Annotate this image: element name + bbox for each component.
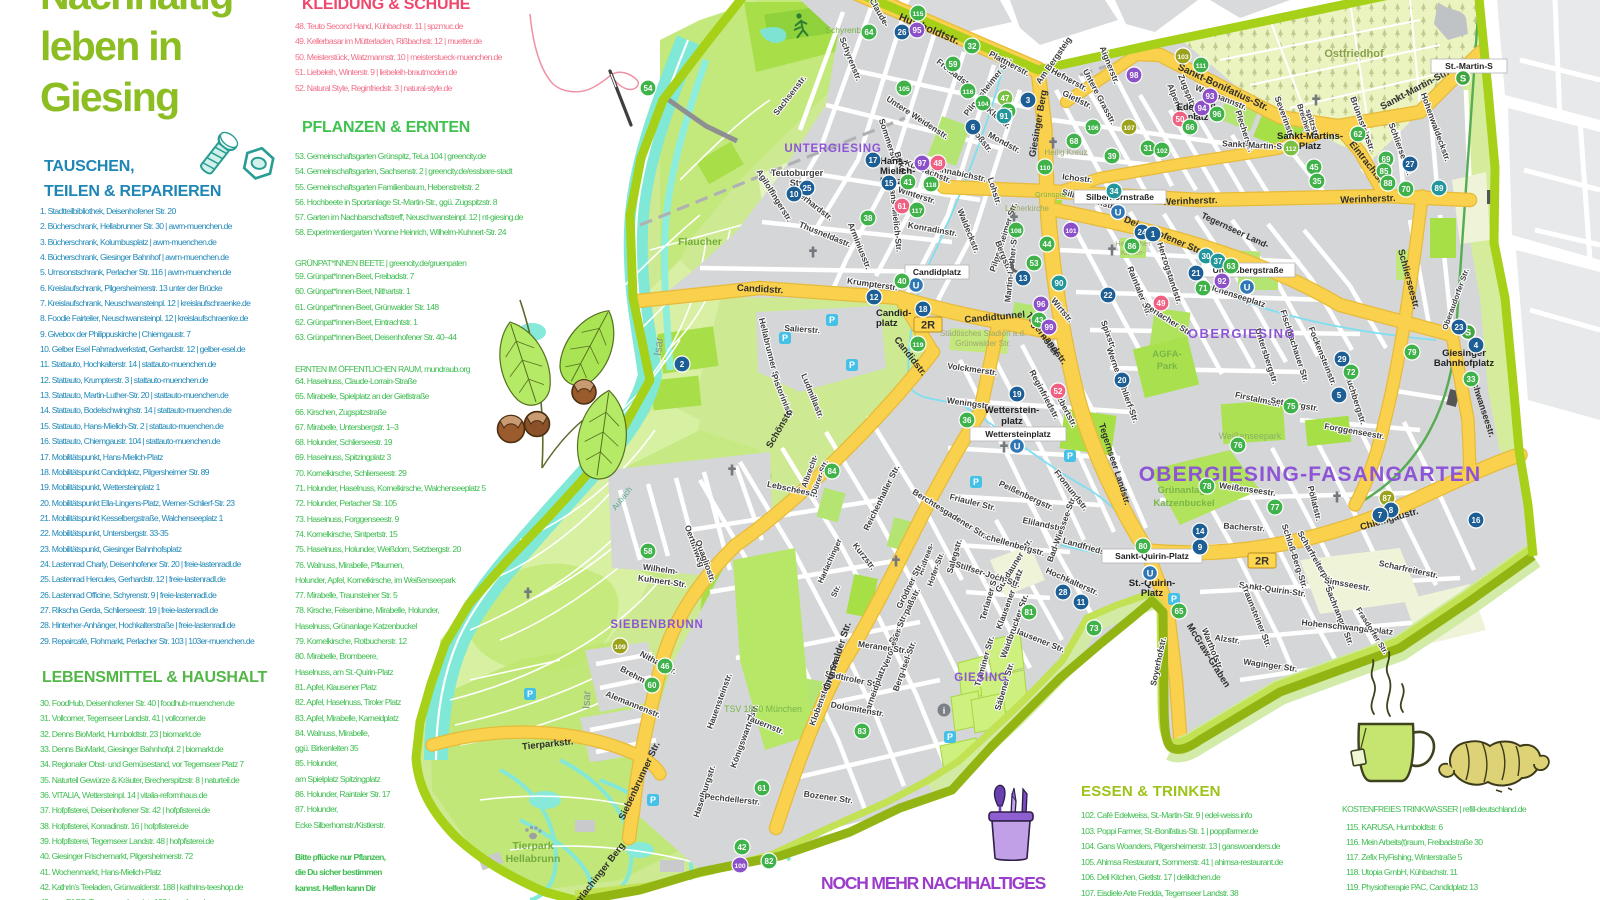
svg-text:42: 42 — [738, 843, 747, 852]
svg-text:1: 1 — [1151, 230, 1156, 239]
svg-text:Werinherstr.: Werinherstr. — [1340, 193, 1396, 206]
svg-text:117: 117 — [912, 208, 923, 215]
svg-text:19: 19 — [1013, 390, 1022, 399]
svg-text:Grünwalder Str.: Grünwalder Str. — [955, 339, 1011, 348]
svg-text:93: 93 — [1206, 92, 1215, 101]
svg-text:16: 16 — [1472, 516, 1481, 525]
svg-text:2R: 2R — [921, 320, 935, 332]
svg-text:106: 106 — [1087, 125, 1099, 132]
svg-text:17: 17 — [869, 156, 878, 165]
svg-text:5: 5 — [1337, 391, 1342, 400]
svg-text:52: 52 — [1054, 387, 1063, 396]
svg-text:38: 38 — [864, 214, 873, 223]
svg-text:119: 119 — [913, 342, 924, 349]
svg-text:P: P — [849, 360, 855, 370]
svg-text:S: S — [1460, 73, 1466, 84]
svg-text:10: 10 — [790, 190, 799, 199]
svg-text:82: 82 — [765, 857, 774, 866]
svg-text:75: 75 — [1287, 402, 1296, 411]
svg-text:9: 9 — [1198, 543, 1203, 552]
svg-text:3: 3 — [1026, 96, 1031, 105]
svg-text:91: 91 — [1000, 112, 1009, 121]
svg-text:Grünspitz: Grünspitz — [1035, 190, 1067, 199]
svg-text:89: 89 — [1435, 184, 1444, 193]
svg-text:25: 25 — [803, 184, 812, 193]
svg-text:98: 98 — [1130, 71, 1139, 80]
svg-text:Platz: Platz — [1141, 588, 1163, 599]
svg-text:P: P — [1067, 451, 1073, 461]
svg-text:21: 21 — [1192, 269, 1201, 278]
svg-text:69: 69 — [1382, 155, 1391, 164]
svg-text:14: 14 — [1196, 527, 1205, 536]
svg-text:96: 96 — [1037, 300, 1046, 309]
svg-text:P: P — [947, 732, 953, 742]
svg-text:2R: 2R — [1255, 556, 1269, 568]
svg-text:111: 111 — [1196, 63, 1207, 70]
svg-text:92: 92 — [1218, 277, 1227, 286]
svg-text:77: 77 — [1271, 503, 1280, 512]
svg-text:31: 31 — [1144, 144, 1153, 153]
svg-text:TSV 1860 München: TSV 1860 München — [724, 704, 802, 714]
svg-text:46: 46 — [661, 662, 670, 671]
svg-text:37: 37 — [1214, 257, 1223, 266]
svg-text:Wettersteinplatz: Wettersteinplatz — [985, 429, 1051, 439]
svg-text:U: U — [1014, 441, 1021, 452]
svg-text:11: 11 — [1077, 598, 1086, 607]
svg-text:112: 112 — [1286, 146, 1297, 153]
svg-text:Isar: Isar — [652, 336, 666, 356]
svg-text:Weißenseepark: Weißenseepark — [1219, 431, 1282, 441]
svg-text:2: 2 — [680, 360, 685, 369]
svg-text:62: 62 — [1354, 130, 1363, 139]
svg-text:54: 54 — [644, 84, 653, 93]
svg-text:102: 102 — [1156, 148, 1168, 155]
svg-text:99: 99 — [1045, 323, 1054, 332]
svg-text:P: P — [782, 333, 788, 343]
svg-text:GIESING: GIESING — [954, 672, 1008, 684]
svg-text:28: 28 — [1059, 588, 1068, 597]
svg-text:U: U — [1147, 568, 1154, 579]
svg-text:Park: Park — [1157, 361, 1178, 372]
svg-text:Tierpark: Tierpark — [512, 840, 553, 852]
svg-text:76: 76 — [1234, 441, 1243, 450]
svg-text:88: 88 — [1384, 179, 1393, 188]
svg-text:27: 27 — [1406, 160, 1415, 169]
svg-text:Hellabrunn: Hellabrunn — [506, 853, 561, 865]
svg-text:Wetterstein-: Wetterstein- — [985, 405, 1040, 416]
svg-text:107: 107 — [1123, 125, 1135, 132]
svg-text:P: P — [829, 315, 835, 325]
svg-text:59: 59 — [949, 60, 958, 69]
svg-text:Heilig Kreuz: Heilig Kreuz — [1044, 148, 1087, 157]
svg-text:39: 39 — [1108, 152, 1117, 161]
svg-text:7: 7 — [1378, 511, 1383, 520]
svg-text:108: 108 — [1010, 228, 1022, 235]
svg-text:18: 18 — [919, 305, 928, 314]
svg-text:61: 61 — [758, 784, 767, 793]
svg-text:109: 109 — [614, 644, 626, 651]
svg-text:78: 78 — [1203, 482, 1212, 491]
svg-text:23: 23 — [1455, 323, 1464, 332]
svg-text:P: P — [973, 477, 979, 487]
svg-text:P: P — [650, 795, 656, 805]
svg-text:96: 96 — [1213, 110, 1222, 119]
svg-text:OBERGIESING-FASANGARTEN: OBERGIESING-FASANGARTEN — [1139, 463, 1482, 486]
svg-text:platz: platz — [1001, 416, 1023, 427]
svg-text:97: 97 — [918, 159, 927, 168]
svg-text:40: 40 — [898, 277, 907, 286]
svg-text:72: 72 — [1347, 368, 1356, 377]
svg-text:Werinherstr.: Werinherstr. — [1162, 195, 1218, 208]
svg-text:47: 47 — [1001, 94, 1010, 103]
svg-text:94: 94 — [1198, 104, 1207, 113]
svg-text:80: 80 — [1139, 542, 1148, 551]
svg-text:73: 73 — [1090, 624, 1099, 633]
svg-text:64: 64 — [865, 28, 874, 37]
svg-text:79: 79 — [1408, 348, 1417, 357]
svg-text:36: 36 — [963, 416, 972, 425]
svg-text:St.-Martin-S: St.-Martin-S — [1445, 61, 1493, 71]
svg-text:83: 83 — [858, 727, 867, 736]
svg-text:65: 65 — [1175, 607, 1184, 616]
svg-text:104: 104 — [977, 101, 989, 108]
svg-text:41: 41 — [904, 178, 913, 187]
svg-text:115: 115 — [913, 11, 924, 18]
svg-text:116: 116 — [963, 89, 974, 96]
svg-text:60: 60 — [648, 681, 657, 690]
svg-text:49: 49 — [1157, 299, 1166, 308]
svg-text:90: 90 — [1055, 279, 1064, 288]
svg-text:4: 4 — [1474, 341, 1479, 350]
svg-text:53: 53 — [1030, 259, 1039, 268]
svg-text:Städtisches Stadion a.d.: Städtisches Stadion a.d. — [940, 329, 1026, 338]
svg-text:P: P — [1171, 594, 1177, 604]
svg-text:45: 45 — [1310, 163, 1319, 172]
svg-text:101: 101 — [1065, 228, 1077, 235]
svg-text:SIEBENBRUNN: SIEBENBRUNN — [610, 619, 703, 631]
svg-text:OBERGIESING: OBERGIESING — [1188, 326, 1296, 341]
svg-text:22: 22 — [1104, 291, 1113, 300]
svg-text:86: 86 — [1128, 242, 1137, 251]
svg-text:66: 66 — [1186, 123, 1195, 132]
svg-text:12: 12 — [870, 293, 879, 302]
svg-text:84: 84 — [828, 467, 837, 476]
svg-text:15: 15 — [885, 179, 894, 188]
svg-text:platz: platz — [876, 318, 898, 329]
svg-text:58: 58 — [644, 547, 653, 556]
svg-text:33: 33 — [1467, 375, 1476, 384]
svg-text:Teutoburger: Teutoburger — [771, 168, 824, 178]
svg-text:103: 103 — [1177, 54, 1189, 61]
svg-text:Platz: Platz — [1299, 141, 1321, 152]
svg-text:81: 81 — [1025, 608, 1034, 617]
svg-text:Katzenbuckel: Katzenbuckel — [1153, 498, 1214, 509]
svg-text:29: 29 — [1338, 355, 1347, 364]
svg-text:Lutherkirche: Lutherkirche — [1005, 204, 1050, 213]
svg-text:20: 20 — [1118, 376, 1127, 385]
svg-text:AGFA-: AGFA- — [1152, 349, 1182, 360]
svg-text:118: 118 — [926, 182, 937, 189]
svg-text:U: U — [1244, 282, 1251, 293]
svg-text:70: 70 — [1402, 185, 1411, 194]
svg-text:44: 44 — [1043, 240, 1052, 249]
svg-text:32: 32 — [968, 42, 977, 51]
svg-text:100: 100 — [734, 863, 746, 870]
svg-text:8: 8 — [1389, 506, 1394, 515]
svg-text:110: 110 — [1040, 165, 1051, 172]
svg-text:Sankt-Quirin-Platz: Sankt-Quirin-Platz — [1115, 551, 1189, 561]
svg-text:105: 105 — [898, 86, 910, 93]
svg-text:71: 71 — [1199, 284, 1208, 293]
svg-text:13: 13 — [1019, 274, 1028, 283]
svg-text:61: 61 — [898, 202, 907, 211]
svg-text:35: 35 — [1313, 177, 1322, 186]
svg-text:Ostfriedhof: Ostfriedhof — [1324, 48, 1384, 60]
svg-text:U: U — [1115, 207, 1122, 218]
svg-text:63: 63 — [1227, 262, 1236, 271]
svg-text:26: 26 — [898, 28, 907, 37]
svg-text:6: 6 — [971, 123, 976, 132]
svg-text:48: 48 — [934, 159, 943, 168]
svg-text:Bahnhofplatz: Bahnhofplatz — [1434, 358, 1494, 369]
svg-text:34: 34 — [1110, 187, 1119, 196]
svg-text:Candidplatz: Candidplatz — [913, 267, 961, 277]
svg-text:68: 68 — [1070, 137, 1079, 146]
svg-text:U: U — [913, 280, 920, 291]
svg-text:Isar: Isar — [581, 690, 594, 709]
svg-text:Flaucher: Flaucher — [678, 236, 722, 248]
svg-text:UNTERGIESING: UNTERGIESING — [784, 143, 881, 155]
svg-text:P: P — [527, 689, 533, 699]
svg-text:95: 95 — [913, 26, 922, 35]
